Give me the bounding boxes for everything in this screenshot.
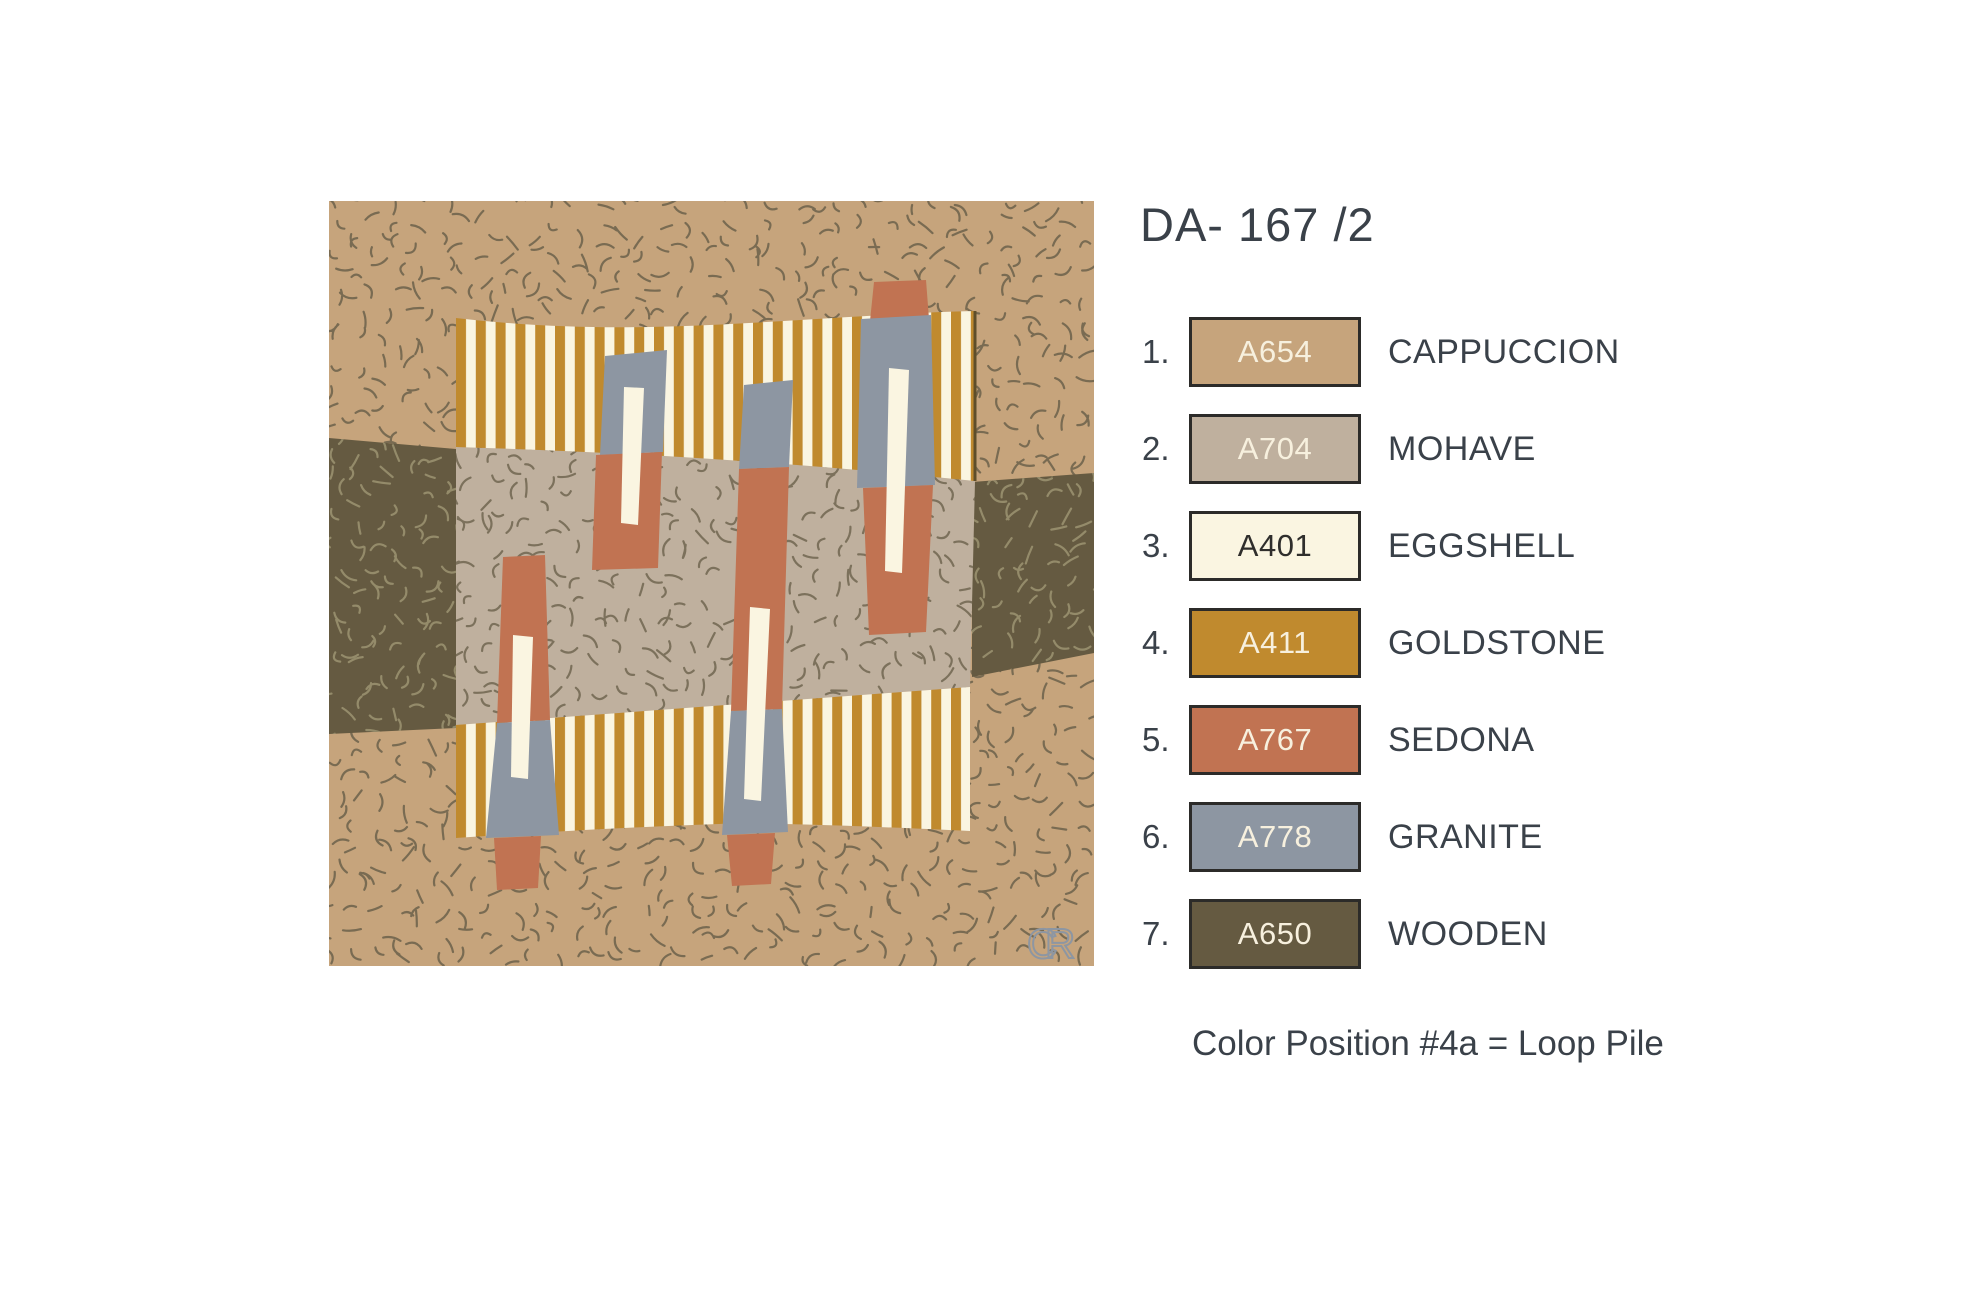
color-legend: 1. A654 CAPPUCCION 2. A704 MOHAVE 3. A40… <box>1142 317 1620 996</box>
design-code-title: DA- 167 /2 <box>1140 197 1375 252</box>
legend-row-number: 1. <box>1142 333 1189 371</box>
legend-row-number: 7. <box>1142 915 1189 953</box>
legend-row: 6. A778 GRANITE <box>1142 802 1620 872</box>
legend-row: 2. A704 MOHAVE <box>1142 414 1620 484</box>
legend-row: 5. A767 SEDONA <box>1142 705 1620 775</box>
col-c-terracotta-stub <box>727 833 775 886</box>
color-code: A654 <box>1238 334 1312 370</box>
legend-row: 3. A401 EGGSHELL <box>1142 511 1620 581</box>
color-chip: A767 <box>1189 705 1361 775</box>
color-chip: A650 <box>1189 899 1361 969</box>
legend-row-number: 5. <box>1142 721 1189 759</box>
color-chip: A654 <box>1189 317 1361 387</box>
legend-row-number: 3. <box>1142 527 1189 565</box>
color-code: A778 <box>1238 819 1312 855</box>
svg-text:R: R <box>1045 920 1075 966</box>
carpet-swatch-image: CR <box>329 201 1094 966</box>
legend-row-number: 2. <box>1142 430 1189 468</box>
legend-row-number: 6. <box>1142 818 1189 856</box>
color-code: A411 <box>1239 625 1311 661</box>
color-name: CAPPUCCION <box>1388 333 1620 372</box>
legend-row: 4. A411 GOLDSTONE <box>1142 608 1620 678</box>
legend-row: 1. A654 CAPPUCCION <box>1142 317 1620 387</box>
color-name: MOHAVE <box>1388 430 1536 469</box>
col-d-terracotta-hat <box>870 280 929 321</box>
color-chip: A704 <box>1189 414 1361 484</box>
legend-row-number: 4. <box>1142 624 1189 662</box>
color-name: GRANITE <box>1388 818 1543 857</box>
color-chip: A401 <box>1189 511 1361 581</box>
color-name: EGGSHELL <box>1388 527 1575 566</box>
pile-note: Color Position #4a = Loop Pile <box>1192 1024 1664 1064</box>
color-code: A704 <box>1238 431 1312 467</box>
color-name: SEDONA <box>1388 721 1535 760</box>
col-a-terracotta-stub <box>494 836 541 890</box>
col-c-granite-top <box>739 380 793 469</box>
designer-monogram: CR <box>1027 920 1075 966</box>
color-code: A401 <box>1238 528 1312 564</box>
color-name: WOODEN <box>1388 915 1548 954</box>
color-chip: A411 <box>1189 608 1361 678</box>
carpet-spec-sheet: CR DA- 167 /2 1. A654 CAPPUCCION 2. A704… <box>0 0 1968 1312</box>
color-chip: A778 <box>1189 802 1361 872</box>
color-name: GOLDSTONE <box>1388 624 1605 663</box>
color-code: A767 <box>1238 722 1312 758</box>
color-code: A650 <box>1238 916 1312 952</box>
legend-row: 7. A650 WOODEN <box>1142 899 1620 969</box>
